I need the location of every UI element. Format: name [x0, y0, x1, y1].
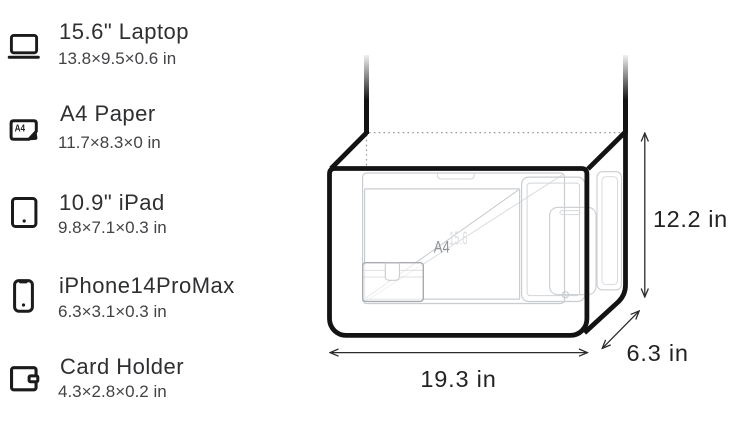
svg-text:A4: A4: [434, 238, 450, 256]
svg-text:19.3 in: 19.3 in: [420, 366, 496, 392]
svg-text:12.2 in: 12.2 in: [653, 206, 728, 232]
svg-text:A4: A4: [15, 124, 26, 135]
svg-text:15.6: 15.6: [449, 228, 468, 248]
svg-text:6.3 in: 6.3 in: [627, 340, 689, 366]
